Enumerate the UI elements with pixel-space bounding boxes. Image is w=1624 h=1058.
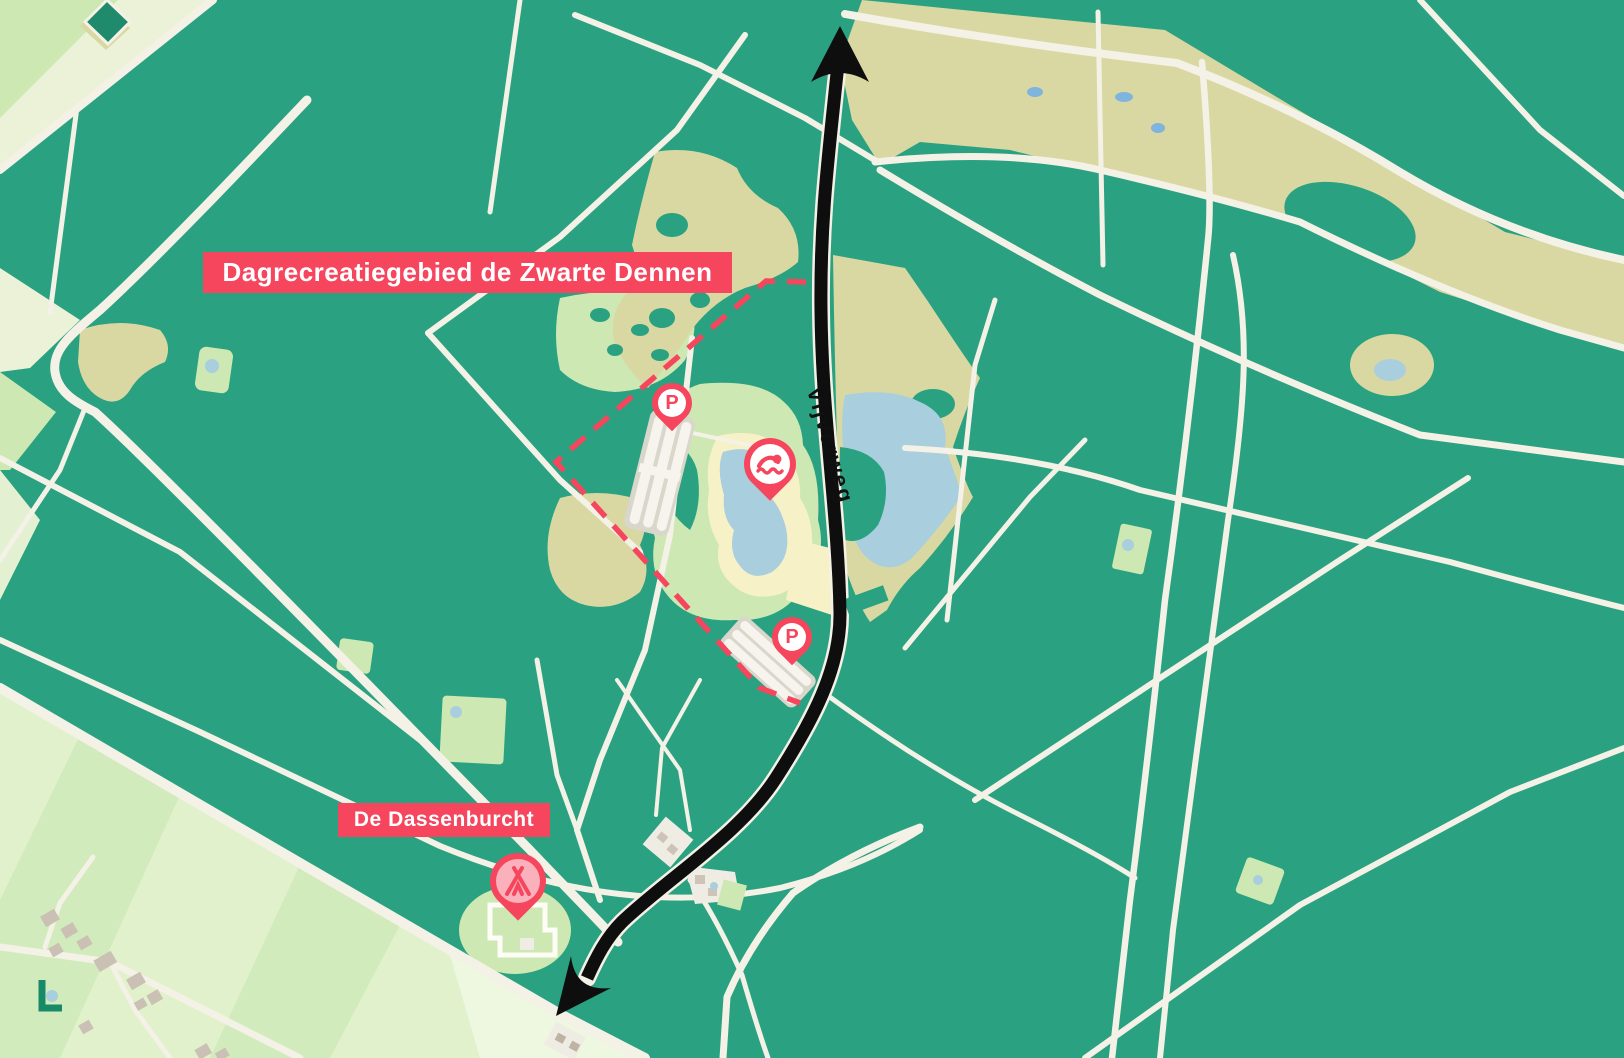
site-label-dassenburcht: De Dassenburcht	[338, 803, 550, 837]
parking-icon: P	[658, 389, 686, 417]
region-label: Dagrecreatiegebied de Zwarte Dennen	[203, 252, 732, 293]
swimmer-icon	[750, 444, 790, 484]
parking-icon: P	[778, 623, 806, 651]
map-canvas[interactable]: Vijverweg Dagrecreatiegebied de Zwarte D…	[0, 0, 1624, 1058]
parking-letter: P	[665, 392, 678, 415]
parking-letter: P	[785, 626, 798, 649]
tent-icon	[496, 859, 540, 903]
map-artwork	[0, 0, 1624, 1058]
